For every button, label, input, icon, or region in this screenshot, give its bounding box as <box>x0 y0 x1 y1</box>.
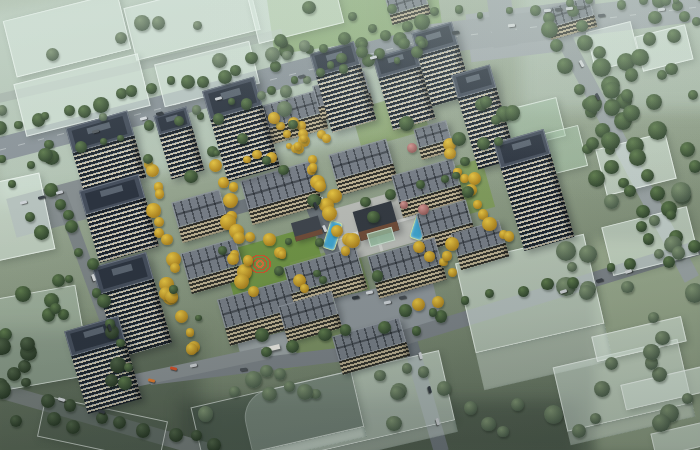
car <box>190 363 198 368</box>
car <box>578 60 584 68</box>
aerial-render-residential-complex <box>0 0 700 450</box>
car <box>38 195 46 200</box>
car <box>91 274 97 282</box>
car <box>399 295 407 300</box>
car <box>560 289 568 294</box>
car <box>56 190 64 195</box>
car <box>598 14 605 18</box>
car <box>566 7 573 11</box>
car <box>313 202 319 210</box>
car <box>298 74 306 79</box>
car <box>20 200 28 205</box>
car <box>544 9 551 13</box>
car-layer <box>0 0 700 450</box>
car <box>435 418 440 426</box>
car <box>594 93 600 101</box>
car <box>215 96 223 101</box>
car <box>240 368 247 372</box>
car <box>352 295 360 300</box>
car <box>92 129 100 134</box>
car <box>452 31 459 35</box>
car <box>370 55 378 60</box>
car <box>170 366 178 371</box>
car <box>384 300 392 305</box>
car <box>625 269 633 274</box>
car <box>596 278 604 283</box>
car <box>508 24 515 28</box>
car <box>140 116 148 121</box>
car <box>427 386 432 394</box>
car <box>156 111 164 116</box>
car <box>58 397 66 402</box>
car <box>658 8 665 12</box>
car <box>148 378 156 383</box>
car <box>577 6 584 10</box>
car <box>107 324 113 332</box>
car <box>322 225 328 233</box>
car <box>555 8 562 12</box>
car <box>418 352 423 360</box>
car <box>366 290 374 295</box>
car <box>98 409 106 414</box>
